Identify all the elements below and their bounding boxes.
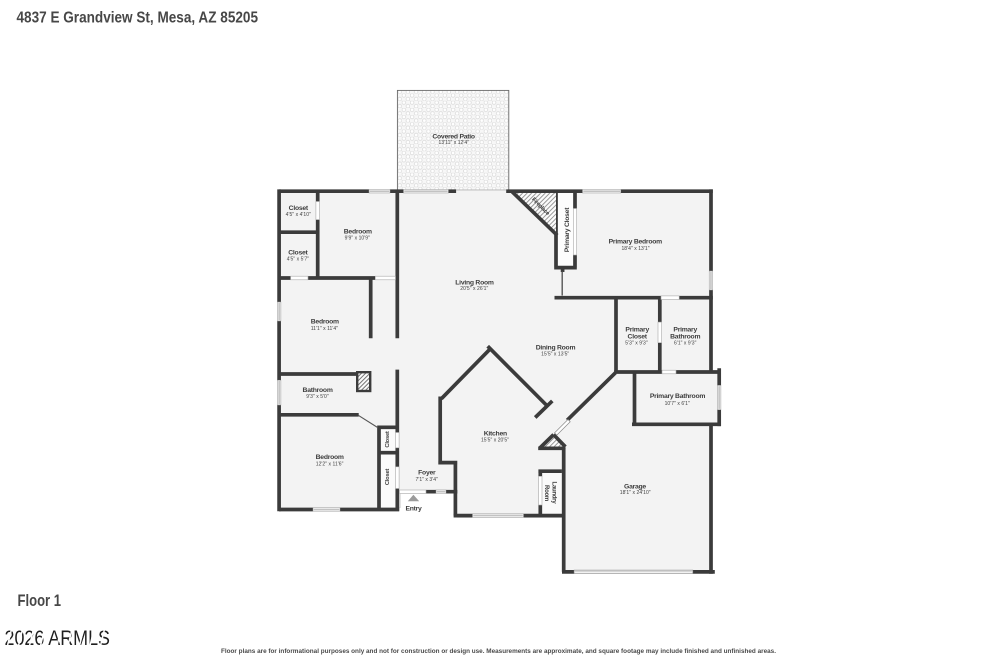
svg-text:10'7" x 6'1": 10'7" x 6'1" — [665, 401, 690, 407]
svg-text:4'5" x 5'7": 4'5" x 5'7" — [287, 256, 310, 262]
svg-text:Primary Bathroom: Primary Bathroom — [650, 393, 706, 400]
svg-text:Laundry: Laundry — [551, 482, 557, 505]
svg-text:Closet: Closet — [628, 333, 648, 340]
svg-text:9'3" x 5'0": 9'3" x 5'0" — [306, 394, 329, 400]
svg-text:Primary: Primary — [625, 326, 649, 333]
svg-text:Kitchen: Kitchen — [484, 431, 507, 438]
svg-text:15'5" x 13'5": 15'5" x 13'5" — [541, 352, 569, 358]
svg-text:4837 E Grandview St, Mesa, AZ: 4837 E Grandview St, Mesa, AZ 85205 — [17, 10, 259, 27]
svg-text:Primary Closet: Primary Closet — [564, 207, 571, 252]
svg-text:18'4" x 13'1": 18'4" x 13'1" — [621, 246, 649, 252]
svg-text:Primary: Primary — [673, 326, 697, 333]
svg-text:15'5" x 20'5": 15'5" x 20'5" — [481, 438, 509, 444]
svg-text:Bathroom: Bathroom — [670, 333, 700, 340]
svg-text:Bedroom: Bedroom — [311, 318, 339, 325]
svg-text:9'9" x 10'9": 9'9" x 10'9" — [345, 235, 370, 241]
svg-text:Closet: Closet — [289, 205, 309, 212]
svg-text:13'11" x 12'4": 13'11" x 12'4" — [439, 140, 470, 146]
svg-text:Entry: Entry — [405, 506, 422, 513]
svg-text:Room: Room — [543, 485, 549, 501]
svg-text:18'1" x 24'10": 18'1" x 24'10" — [620, 490, 651, 496]
svg-text:5'3" x 9'3": 5'3" x 9'3" — [625, 340, 648, 346]
svg-text:7'1" x 3'4": 7'1" x 3'4" — [415, 477, 438, 483]
svg-text:Primary Bedroom: Primary Bedroom — [609, 239, 662, 246]
svg-text:Floor plans are for informatio: Floor plans are for informational purpos… — [221, 648, 776, 655]
svg-text:4'5" x 4'10": 4'5" x 4'10" — [286, 212, 311, 218]
svg-text:Closet: Closet — [288, 249, 308, 256]
svg-text:Dining Room: Dining Room — [536, 344, 576, 351]
svg-text:20'5" x 26'1": 20'5" x 26'1" — [460, 286, 488, 292]
svg-text:Closet: Closet — [385, 469, 391, 486]
svg-text:Closet: Closet — [385, 431, 391, 448]
svg-text:Floor 1: Floor 1 — [18, 592, 62, 610]
svg-text:11'1" x 11'4": 11'1" x 11'4" — [311, 326, 339, 332]
svg-text:6'1" x 9'3": 6'1" x 9'3" — [674, 340, 697, 346]
svg-text:12'2" x 11'6": 12'2" x 11'6" — [316, 461, 344, 467]
svg-text:Foyer: Foyer — [418, 470, 436, 477]
svg-text:Bedroom: Bedroom — [316, 454, 344, 461]
